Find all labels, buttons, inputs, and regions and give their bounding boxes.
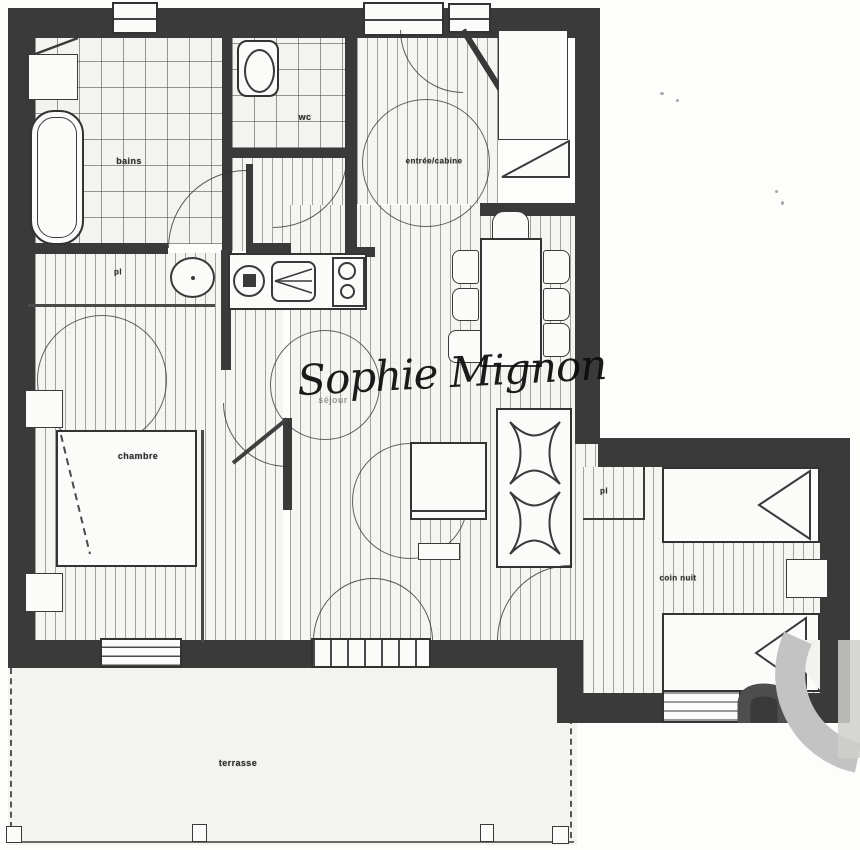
dining-chair-left [452,250,479,284]
wall-annex-top [598,438,850,467]
annex-nightstand [786,559,828,598]
window-annex-south [662,690,741,723]
window-top-bathroom [112,2,158,34]
cabin-bed-pillow [500,139,572,180]
annex-closet-label: pl [600,487,608,496]
window-bedroom-south [100,638,182,668]
terrace-area [8,668,577,845]
bedroom-door-leaf [230,415,290,467]
terrace-post [552,826,569,844]
paper-speck [781,201,784,205]
sofa-cushion [506,488,566,558]
bedroom-basin [170,257,215,298]
paper-speck [660,92,664,95]
dining-chair-head [492,211,529,240]
dining-chair-right [543,288,570,321]
annex-closet [583,467,645,520]
agency-logo-band [838,640,860,758]
annex-bed-top-pillow [755,469,815,543]
bathroom-label: bains [116,156,142,166]
wall-left [8,8,35,668]
sofa [496,408,572,568]
kitchen-faucet [243,274,256,287]
kitchen-drainer [271,261,316,302]
bedroom-divider-line [201,430,204,642]
dining-chair-right [543,250,570,284]
sleeping-corner-label: coin nuit [660,574,697,583]
paper-speck [775,190,778,193]
paper-speck [676,99,679,102]
nightstand [25,573,63,612]
bathtub [30,110,84,245]
terrace-sliding-door [311,638,431,668]
wall-wc-south [232,148,345,158]
terrace-right-edge [570,718,572,838]
dining-chair-left [452,288,479,321]
wall-bottom-main [8,640,583,668]
terrace-post [480,824,494,842]
wc-label: wc [299,112,312,122]
terrace-post [6,826,22,843]
nightstand [25,390,63,428]
bedroom-closet-label: pl [114,268,122,277]
sofa-ottoman [418,543,460,560]
terrace-post [192,824,207,842]
bedroom-closet-line [28,304,215,307]
floor-plan-scan: bains wc entrée/cabine pl chambre séjour… [0,0,860,850]
entry-label: entrée/cabine [406,157,463,166]
sofa-cushion [506,418,566,488]
wall-wc-east [345,38,357,252]
kitchen-stove [332,257,365,307]
terrace-label: terrasse [219,758,257,768]
toilet [237,40,279,97]
bathroom-shelf [28,54,78,100]
terrace-left-edge [10,668,12,828]
bedroom-label: chambre [118,451,158,461]
cabin-bunk-bed [498,30,568,140]
bathroom-door-leaf [246,164,253,248]
coffee-table [410,442,487,520]
